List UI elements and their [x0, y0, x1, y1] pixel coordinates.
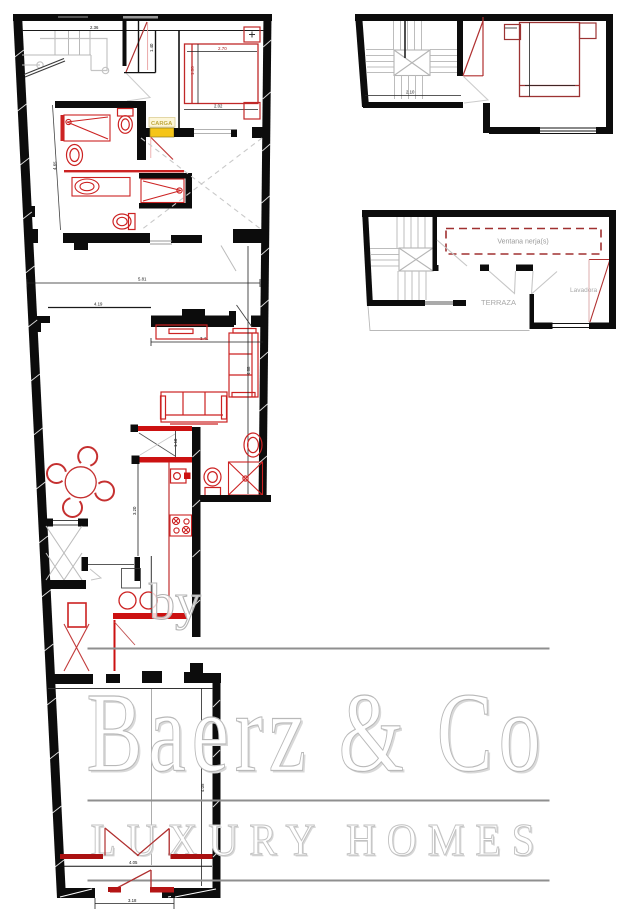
svg-text:4.19: 4.19 — [94, 302, 103, 307]
svg-text:3.18: 3.18 — [128, 898, 137, 903]
svg-text:3.20: 3.20 — [132, 506, 137, 515]
svg-text:2.10: 2.10 — [406, 90, 415, 95]
svg-text:4.65: 4.65 — [52, 161, 58, 170]
svg-text:2.36: 2.36 — [90, 25, 99, 30]
svg-text:by: by — [149, 574, 201, 631]
svg-text:Lavadora: Lavadora — [570, 287, 597, 294]
svg-text:1.40: 1.40 — [149, 43, 154, 52]
svg-text:Ventana nerja(s): Ventana nerja(s) — [497, 239, 548, 246]
svg-text:Baerz & Co: Baerz & Co — [87, 671, 547, 796]
svg-text:LUXURY HOMES: LUXURY HOMES — [91, 814, 546, 865]
svg-text:2.70: 2.70 — [218, 46, 227, 51]
svg-text:1.50: 1.50 — [190, 66, 195, 75]
svg-text:4.88: 4.88 — [246, 366, 251, 375]
svg-text:5.81: 5.81 — [138, 277, 147, 282]
svg-text:2.02: 2.02 — [214, 104, 223, 109]
svg-text:CARGA: CARGA — [151, 121, 173, 127]
svg-text:TERRAZA: TERRAZA — [481, 298, 516, 307]
